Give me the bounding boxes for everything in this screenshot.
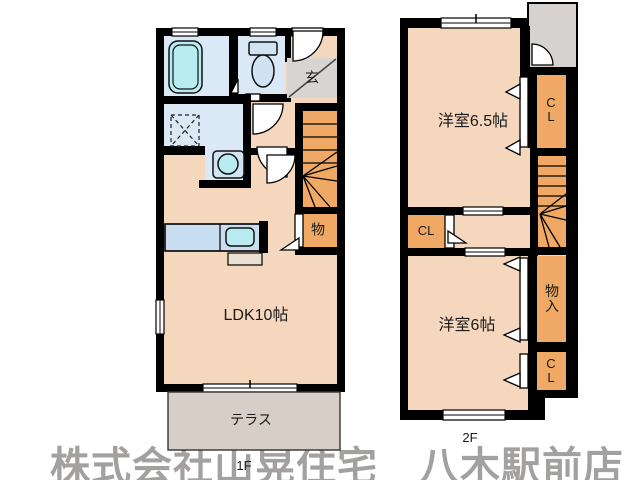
closet-label-hall: CL [418,224,435,238]
floor2-plan [400,3,590,432]
washbasin-icon [213,151,244,178]
sliding-door-bedroom65-icon [463,207,503,215]
toilet-icon [249,42,277,87]
bathtub-icon [169,41,202,93]
floor1-plan [156,28,345,450]
staircase-1f-icon [303,111,337,207]
sliding-door-bedroom6-icon [465,248,505,256]
closet-lower-door [520,354,528,388]
floor-plan-drawing [0,0,640,480]
storage-door-2f [520,258,528,340]
window-bedroom6-icon [443,410,505,420]
window-bedroom65-icon [441,14,511,28]
room-label-terrace: テラス [230,412,272,427]
room-label-bedroom-6: 洋室6帖 [439,317,496,335]
room-label-entrance: 玄 [305,70,319,85]
closet-upper-door [520,77,528,147]
storage-label-2f: 物入 [544,284,559,314]
room-label-storage-1f: 物 [311,222,325,237]
window-toilet-icon [250,28,276,36]
floor2-label: 2F [462,431,477,445]
room-label-ldk: LDK10帖 [224,307,289,325]
floor-plan-canvas: 株式会社山晃住宅 八木駅前店 [0,0,640,480]
closet-label-lower: CL [544,357,558,385]
floor1-label: 1F [236,459,251,473]
window-ldk-left-icon [156,300,164,334]
room-label-bedroom-65: 洋室6.5帖 [438,113,508,131]
washroom [164,104,243,146]
closet-label-upper: CL [544,96,558,124]
kitchen-sink-icon [226,228,254,246]
staircase-2f-icon [538,156,566,247]
window-bath-icon [172,28,198,36]
